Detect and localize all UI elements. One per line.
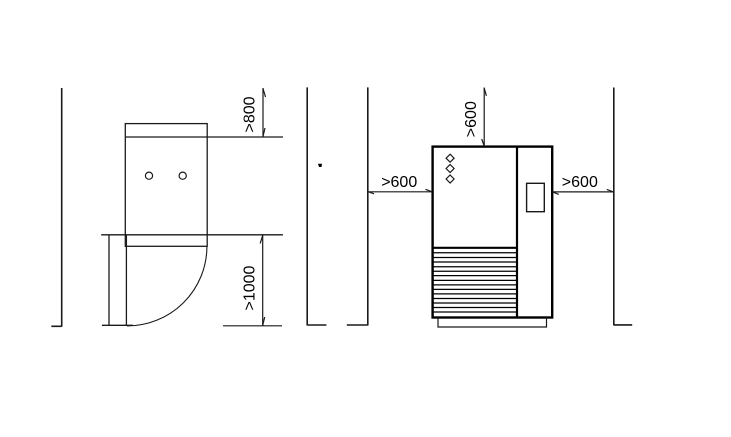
svg-text:>600: >600 [463,101,480,137]
svg-text:>600: >600 [562,174,598,191]
svg-text:>1000: >1000 [242,265,259,310]
svg-text:>800: >800 [242,96,259,132]
svg-text:>600: >600 [381,174,417,191]
